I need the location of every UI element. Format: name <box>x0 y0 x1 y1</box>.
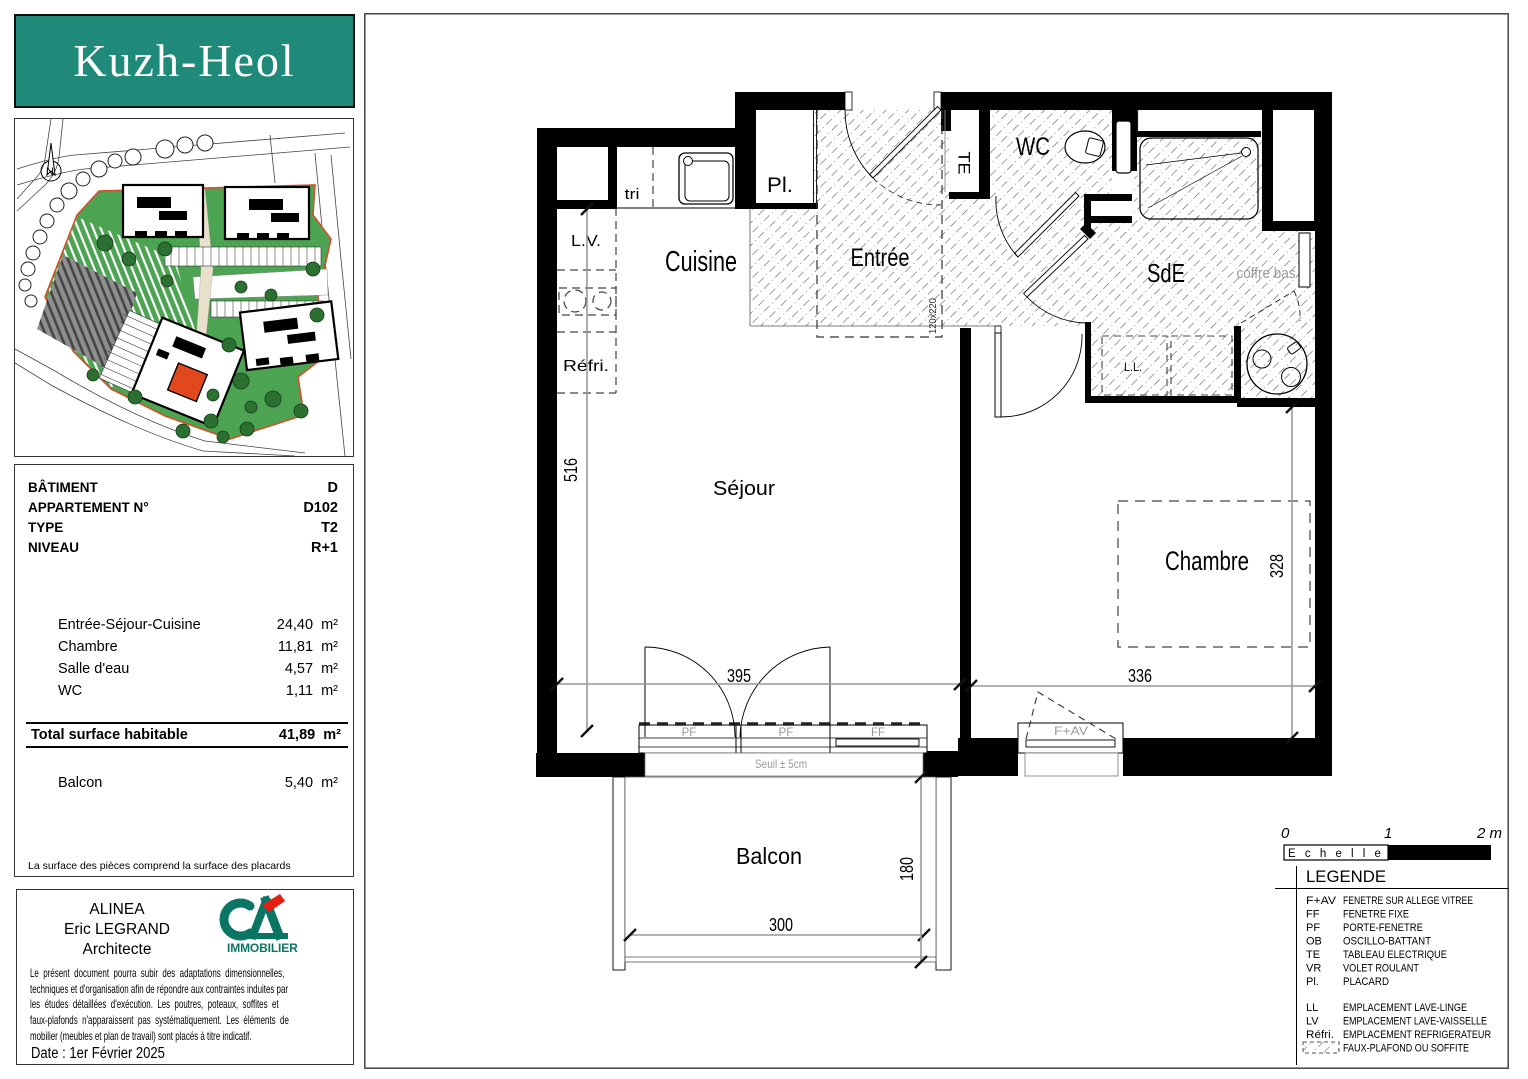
svg-text:Séjour: Séjour <box>713 478 775 500</box>
svg-text:WC: WC <box>1016 133 1050 161</box>
svg-text:F+AV: F+AV <box>1054 724 1088 738</box>
svg-text:FF: FF <box>1306 909 1320 921</box>
svg-text:FF: FF <box>871 727 885 739</box>
svg-text:coffre bas: coffre bas <box>1237 265 1296 282</box>
svg-text:Balcon: Balcon <box>736 843 802 869</box>
svg-text:1: 1 <box>1384 825 1392 842</box>
svg-text:L.V.: L.V. <box>571 233 601 250</box>
svg-text:Pl.: Pl. <box>767 174 793 197</box>
svg-text:TABLEAU ELECTRIQUE: TABLEAU ELECTRIQUE <box>1343 949 1447 961</box>
svg-text:OB: OB <box>1306 936 1322 948</box>
svg-text:300: 300 <box>769 915 793 935</box>
svg-text:Seuil ± 5cm: Seuil ± 5cm <box>755 757 807 771</box>
svg-text:PLACARD: PLACARD <box>1343 976 1389 988</box>
svg-text:395: 395 <box>727 666 751 686</box>
svg-text:F+AV: F+AV <box>1306 895 1337 907</box>
svg-text:L.L.: L.L. <box>1124 360 1142 374</box>
svg-text:328: 328 <box>1267 554 1287 578</box>
svg-text:2 m: 2 m <box>1476 825 1502 842</box>
svg-text:VR: VR <box>1306 963 1321 975</box>
svg-text:PORTE-FENETRE: PORTE-FENETRE <box>1343 922 1423 934</box>
svg-text:TE: TE <box>955 152 974 175</box>
svg-text:VOLET ROULANT: VOLET ROULANT <box>1343 963 1419 975</box>
svg-text:TE: TE <box>1306 949 1320 961</box>
svg-text:516: 516 <box>561 458 581 482</box>
svg-text:Réfri.: Réfri. <box>1306 1029 1334 1041</box>
svg-text:EMPLACEMENT REFRIGERATEUR: EMPLACEMENT REFRIGERATEUR <box>1343 1029 1491 1041</box>
svg-text:FENETRE FIXE: FENETRE FIXE <box>1343 909 1409 921</box>
svg-text:N: N <box>46 166 54 178</box>
svg-text:PF: PF <box>779 727 794 739</box>
svg-text:PF: PF <box>1306 922 1320 934</box>
svg-text:180: 180 <box>897 857 917 881</box>
svg-text:LL: LL <box>1306 1002 1318 1014</box>
svg-text:Réfri.: Réfri. <box>563 358 609 375</box>
svg-text:Chambre: Chambre <box>1165 546 1249 576</box>
svg-text:0: 0 <box>1281 825 1290 842</box>
svg-text:LV: LV <box>1306 1016 1319 1028</box>
svg-text:FAUX-PLAFOND OU SOFFITE: FAUX-PLAFOND OU SOFFITE <box>1343 1043 1469 1055</box>
svg-text:Cuisine: Cuisine <box>665 246 737 278</box>
svg-text:E c h e l l e: E c h e l l e <box>1288 848 1384 860</box>
svg-text:OSCILLO-BATTANT: OSCILLO-BATTANT <box>1343 936 1431 948</box>
svg-text:EMPLACEMENT LAVE-LINGE: EMPLACEMENT LAVE-LINGE <box>1343 1002 1467 1014</box>
svg-text:IMMOBILIER: IMMOBILIER <box>227 941 299 955</box>
svg-text:LEGENDE: LEGENDE <box>1306 867 1386 886</box>
svg-text:EMPLACEMENT LAVE-VAISSELLE: EMPLACEMENT LAVE-VAISSELLE <box>1343 1016 1487 1028</box>
svg-text:FENETRE SUR ALLEGE VITREE: FENETRE SUR ALLEGE VITREE <box>1343 895 1473 907</box>
svg-text:Pl.: Pl. <box>1306 976 1319 988</box>
svg-text:120x220: 120x220 <box>928 298 939 334</box>
svg-text:Entrée: Entrée <box>851 244 910 272</box>
svg-text:336: 336 <box>1128 666 1152 686</box>
svg-text:SdE: SdE <box>1147 258 1185 288</box>
svg-text:tri: tri <box>625 186 640 203</box>
svg-text:PF: PF <box>682 727 697 739</box>
